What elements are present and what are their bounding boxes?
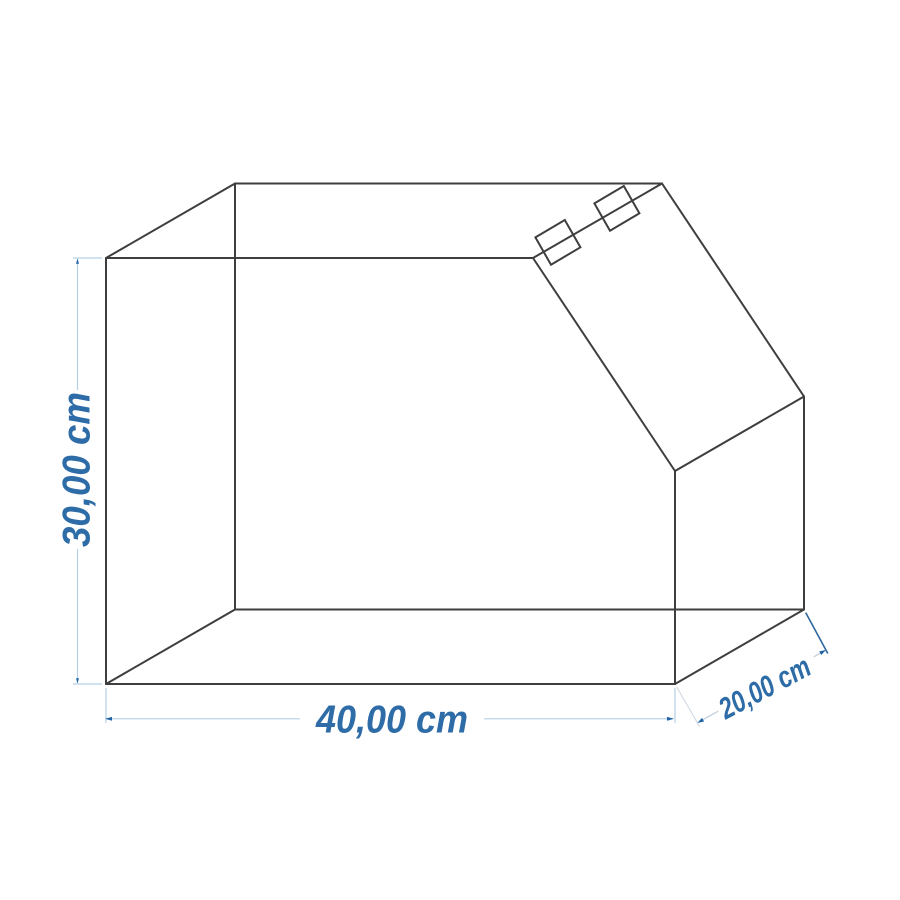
- svg-text:40,00 cm: 40,00 cm: [315, 699, 468, 742]
- svg-text:30,00 cm: 30,00 cm: [56, 392, 99, 547]
